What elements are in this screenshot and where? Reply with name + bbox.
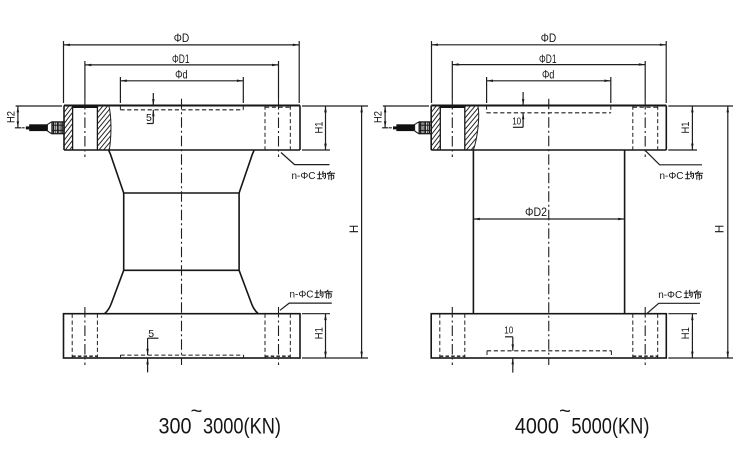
svg-text:10: 10	[504, 325, 513, 337]
svg-text:H2: H2	[373, 111, 385, 123]
svg-text:H1: H1	[680, 122, 692, 134]
svg-text:H1: H1	[313, 122, 325, 134]
svg-text:ΦD: ΦD	[541, 31, 557, 45]
svg-text:n-ΦC: n-ΦC	[292, 171, 316, 182]
svg-text:5000(KN): 5000(KN)	[571, 414, 649, 439]
svg-text:10: 10	[512, 115, 521, 127]
svg-text:n-ΦC: n-ΦC	[660, 171, 684, 182]
svg-text:ΦD: ΦD	[174, 31, 190, 45]
svg-text:ΦD1: ΦD1	[539, 52, 557, 66]
svg-text:n-ΦC: n-ΦC	[290, 290, 314, 301]
svg-text:~: ~	[191, 401, 203, 423]
svg-text:H: H	[347, 225, 361, 234]
svg-text:Φd: Φd	[175, 68, 188, 82]
svg-text:n-ΦC: n-ΦC	[658, 290, 682, 301]
svg-text:Φd: Φd	[542, 68, 555, 82]
svg-text:~: ~	[559, 401, 571, 423]
svg-text:300: 300	[159, 414, 192, 439]
svg-text:H1: H1	[313, 327, 325, 339]
svg-text:5: 5	[146, 112, 152, 124]
svg-text:H: H	[713, 225, 727, 234]
svg-text:ΦD1: ΦD1	[172, 52, 190, 66]
svg-text:ΦD2: ΦD2	[525, 205, 547, 219]
svg-text:H1: H1	[680, 327, 692, 339]
svg-text:4000: 4000	[515, 414, 559, 439]
svg-text:H2: H2	[5, 111, 17, 123]
svg-text:3000(KN): 3000(KN)	[203, 414, 281, 439]
